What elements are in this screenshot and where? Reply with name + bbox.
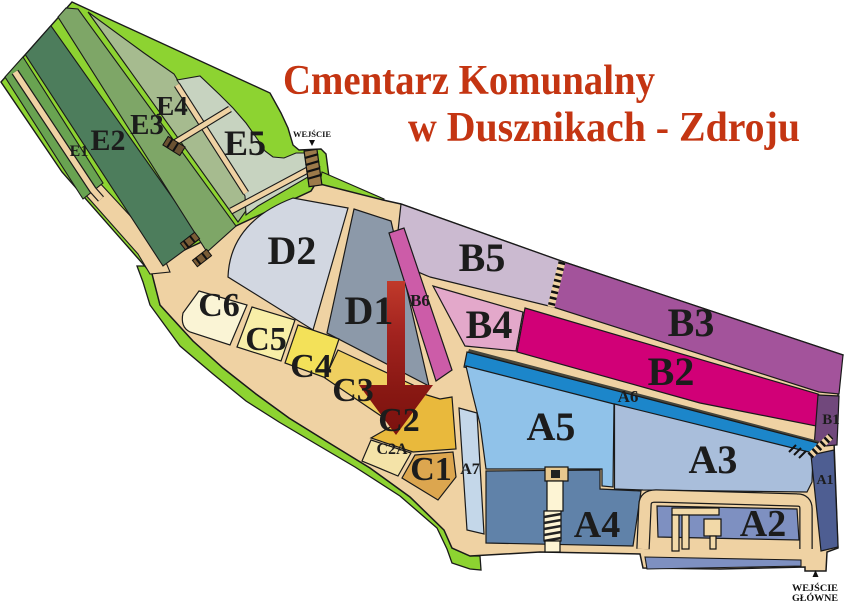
svg-text:E2: E2 xyxy=(90,124,125,157)
svg-text:C1: C1 xyxy=(410,451,452,488)
svg-text:C5: C5 xyxy=(245,321,287,358)
svg-text:B6: B6 xyxy=(410,291,430,310)
svg-text:WEJŚCIE: WEJŚCIE xyxy=(293,129,331,139)
svg-text:A4: A4 xyxy=(574,504,620,546)
svg-text:D1: D1 xyxy=(345,288,394,333)
svg-text:A3: A3 xyxy=(689,437,738,482)
svg-text:E5: E5 xyxy=(224,123,266,163)
svg-text:B4: B4 xyxy=(466,302,513,347)
svg-text:C4: C4 xyxy=(290,348,332,385)
svg-text:Cmentarz Komunalny: Cmentarz Komunalny xyxy=(283,58,655,104)
svg-text:B2: B2 xyxy=(648,349,695,394)
svg-text:A7: A7 xyxy=(460,461,480,478)
svg-text:D2: D2 xyxy=(268,228,317,273)
svg-text:C6: C6 xyxy=(198,287,240,324)
svg-text:WEJŚCIE: WEJŚCIE xyxy=(792,582,838,594)
svg-text:B3: B3 xyxy=(668,300,715,345)
svg-text:A1: A1 xyxy=(816,473,833,488)
svg-text:A2: A2 xyxy=(740,503,786,545)
svg-text:B1: B1 xyxy=(822,412,840,428)
svg-text:A6: A6 xyxy=(618,387,639,406)
svg-text:C2A: C2A xyxy=(376,441,408,458)
svg-text:GŁÓWNE: GŁÓWNE xyxy=(792,592,838,603)
svg-text:E4: E4 xyxy=(156,91,188,121)
svg-text:A5: A5 xyxy=(527,404,576,449)
svg-text:B5: B5 xyxy=(459,235,506,280)
svg-text:C2: C2 xyxy=(378,402,420,439)
svg-text:w Dusznikach - Zdroju: w Dusznikach - Zdroju xyxy=(408,105,800,151)
svg-text:E1: E1 xyxy=(70,143,89,160)
svg-text:C3: C3 xyxy=(332,372,374,409)
